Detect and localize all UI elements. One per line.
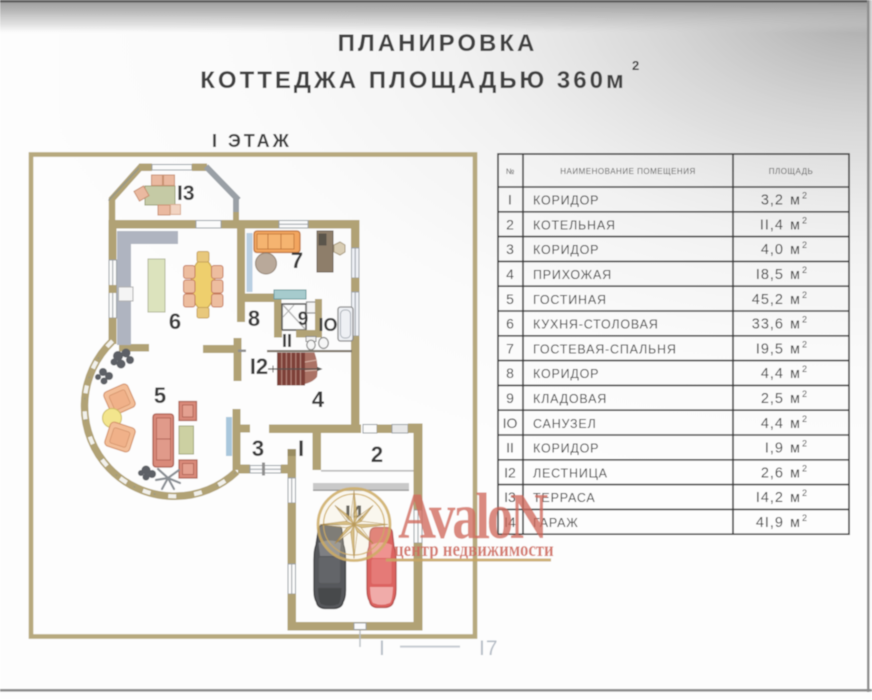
svg-text:33,6: 33,6 <box>752 317 784 333</box>
svg-text:I4,2: I4,2 <box>756 490 784 506</box>
svg-text:6: 6 <box>169 309 181 334</box>
svg-text:НАИМЕНОВАНИЕ ПОМЕЩЕНИЯ: НАИМЕНОВАНИЕ ПОМЕЩЕНИЯ <box>560 167 695 176</box>
svg-text:КУХНЯ-СТОЛОВАЯ: КУХНЯ-СТОЛОВАЯ <box>533 318 659 332</box>
svg-text:2: 2 <box>802 389 807 399</box>
svg-text:ЛЕСТНИЦА: ЛЕСТНИЦА <box>533 466 608 480</box>
svg-text:2,6: 2,6 <box>761 465 784 481</box>
svg-text:2: 2 <box>802 439 807 449</box>
svg-text:4: 4 <box>506 266 514 282</box>
svg-text:2,5: 2,5 <box>761 391 784 407</box>
svg-text:II: II <box>282 331 292 351</box>
svg-text:КОРИДОР: КОРИДОР <box>533 367 599 381</box>
svg-text:2: 2 <box>802 265 807 275</box>
svg-text:2: 2 <box>802 315 807 325</box>
svg-text:ПЛАНИРОВКА: ПЛАНИРОВКА <box>338 30 538 57</box>
svg-text:4,0: 4,0 <box>761 242 784 258</box>
svg-text:5: 5 <box>154 383 166 408</box>
svg-text:IO: IO <box>318 315 337 335</box>
svg-text:I,9: I,9 <box>765 441 784 457</box>
svg-text:м: м <box>790 391 800 407</box>
svg-text:7: 7 <box>291 248 303 273</box>
svg-text:центр недвижимости: центр недвижимости <box>394 538 554 561</box>
svg-text:м: м <box>790 366 800 382</box>
svg-text:м: м <box>790 217 800 233</box>
svg-text:IO: IO <box>503 415 518 431</box>
svg-text:м: м <box>790 193 800 209</box>
svg-text:КОРИДОР: КОРИДОР <box>533 243 599 257</box>
svg-text:2: 2 <box>802 240 807 250</box>
svg-text:I: I <box>379 637 385 660</box>
svg-text:2: 2 <box>802 339 807 349</box>
svg-text:I: I <box>508 192 512 208</box>
svg-text:2: 2 <box>802 364 807 374</box>
svg-text:9: 9 <box>506 390 514 406</box>
svg-text:I7: I7 <box>479 637 499 660</box>
svg-text:I3: I3 <box>177 182 195 205</box>
svg-text:2: 2 <box>802 191 807 201</box>
svg-text:8: 8 <box>248 306 260 331</box>
svg-text:3: 3 <box>506 241 514 257</box>
svg-text:КОРИДОР: КОРИДОР <box>533 194 599 208</box>
svg-text:КОРИДОР: КОРИДОР <box>533 442 599 456</box>
svg-text:I9,5: I9,5 <box>756 341 784 357</box>
svg-text:4,4: 4,4 <box>761 366 784 382</box>
svg-text:2: 2 <box>802 488 807 498</box>
svg-text:2: 2 <box>802 414 807 424</box>
svg-text:6: 6 <box>506 316 514 332</box>
svg-text:4: 4 <box>312 387 325 412</box>
svg-text:I8,5: I8,5 <box>756 267 784 283</box>
svg-text:II,4: II,4 <box>760 217 784 233</box>
svg-text:м: м <box>790 416 800 432</box>
svg-text:3: 3 <box>252 436 264 461</box>
svg-text:2: 2 <box>632 58 639 73</box>
svg-text:м: м <box>790 490 800 506</box>
svg-text:м: м <box>790 242 800 258</box>
svg-text:м: м <box>790 465 800 481</box>
svg-text:ПЛОЩАДЬ: ПЛОЩАДЬ <box>769 167 814 176</box>
svg-text:II: II <box>506 440 514 456</box>
svg-text:КОТЕЛЬНАЯ: КОТЕЛЬНАЯ <box>533 218 616 232</box>
svg-text:I ЭТАЖ: I ЭТАЖ <box>212 131 292 151</box>
svg-text:9: 9 <box>298 309 309 330</box>
svg-text:2: 2 <box>802 513 807 523</box>
svg-text:4I,9: 4I,9 <box>756 515 784 531</box>
svg-text:I2: I2 <box>504 464 516 480</box>
svg-text:7: 7 <box>506 340 514 356</box>
svg-text:ГОСТИНАЯ: ГОСТИНАЯ <box>533 293 607 307</box>
svg-text:3,2: 3,2 <box>761 193 784 209</box>
svg-text:I2: I2 <box>250 354 268 379</box>
svg-text:45,2: 45,2 <box>752 292 784 308</box>
svg-text:2: 2 <box>802 215 807 225</box>
svg-text:м: м <box>790 441 800 457</box>
svg-text:ПРИХОЖАЯ: ПРИХОЖАЯ <box>533 268 612 282</box>
svg-text:САНУЗЕЛ: САНУЗЕЛ <box>533 417 596 431</box>
svg-text:м: м <box>790 317 800 333</box>
svg-text:4,4: 4,4 <box>761 416 784 432</box>
svg-text:2: 2 <box>802 290 807 300</box>
svg-text:КОТТЕДЖА ПЛОЩАДЬЮ 360м: КОТТЕДЖА ПЛОЩАДЬЮ 360м <box>200 67 626 94</box>
svg-text:КЛАДОВАЯ: КЛАДОВАЯ <box>533 392 607 406</box>
svg-text:ГОСТЕВАЯ-СПАЛЬНЯ: ГОСТЕВАЯ-СПАЛЬНЯ <box>533 342 677 356</box>
svg-text:№: № <box>506 167 515 176</box>
svg-text:2: 2 <box>371 442 383 467</box>
svg-text:м: м <box>790 515 800 531</box>
svg-text:м: м <box>790 341 800 357</box>
svg-text:2: 2 <box>802 463 807 473</box>
svg-text:8: 8 <box>506 365 514 381</box>
svg-text:5: 5 <box>506 291 514 307</box>
svg-text:м: м <box>790 267 800 283</box>
svg-text:2: 2 <box>506 216 514 232</box>
svg-text:м: м <box>790 292 800 308</box>
svg-text:I: I <box>298 436 304 461</box>
